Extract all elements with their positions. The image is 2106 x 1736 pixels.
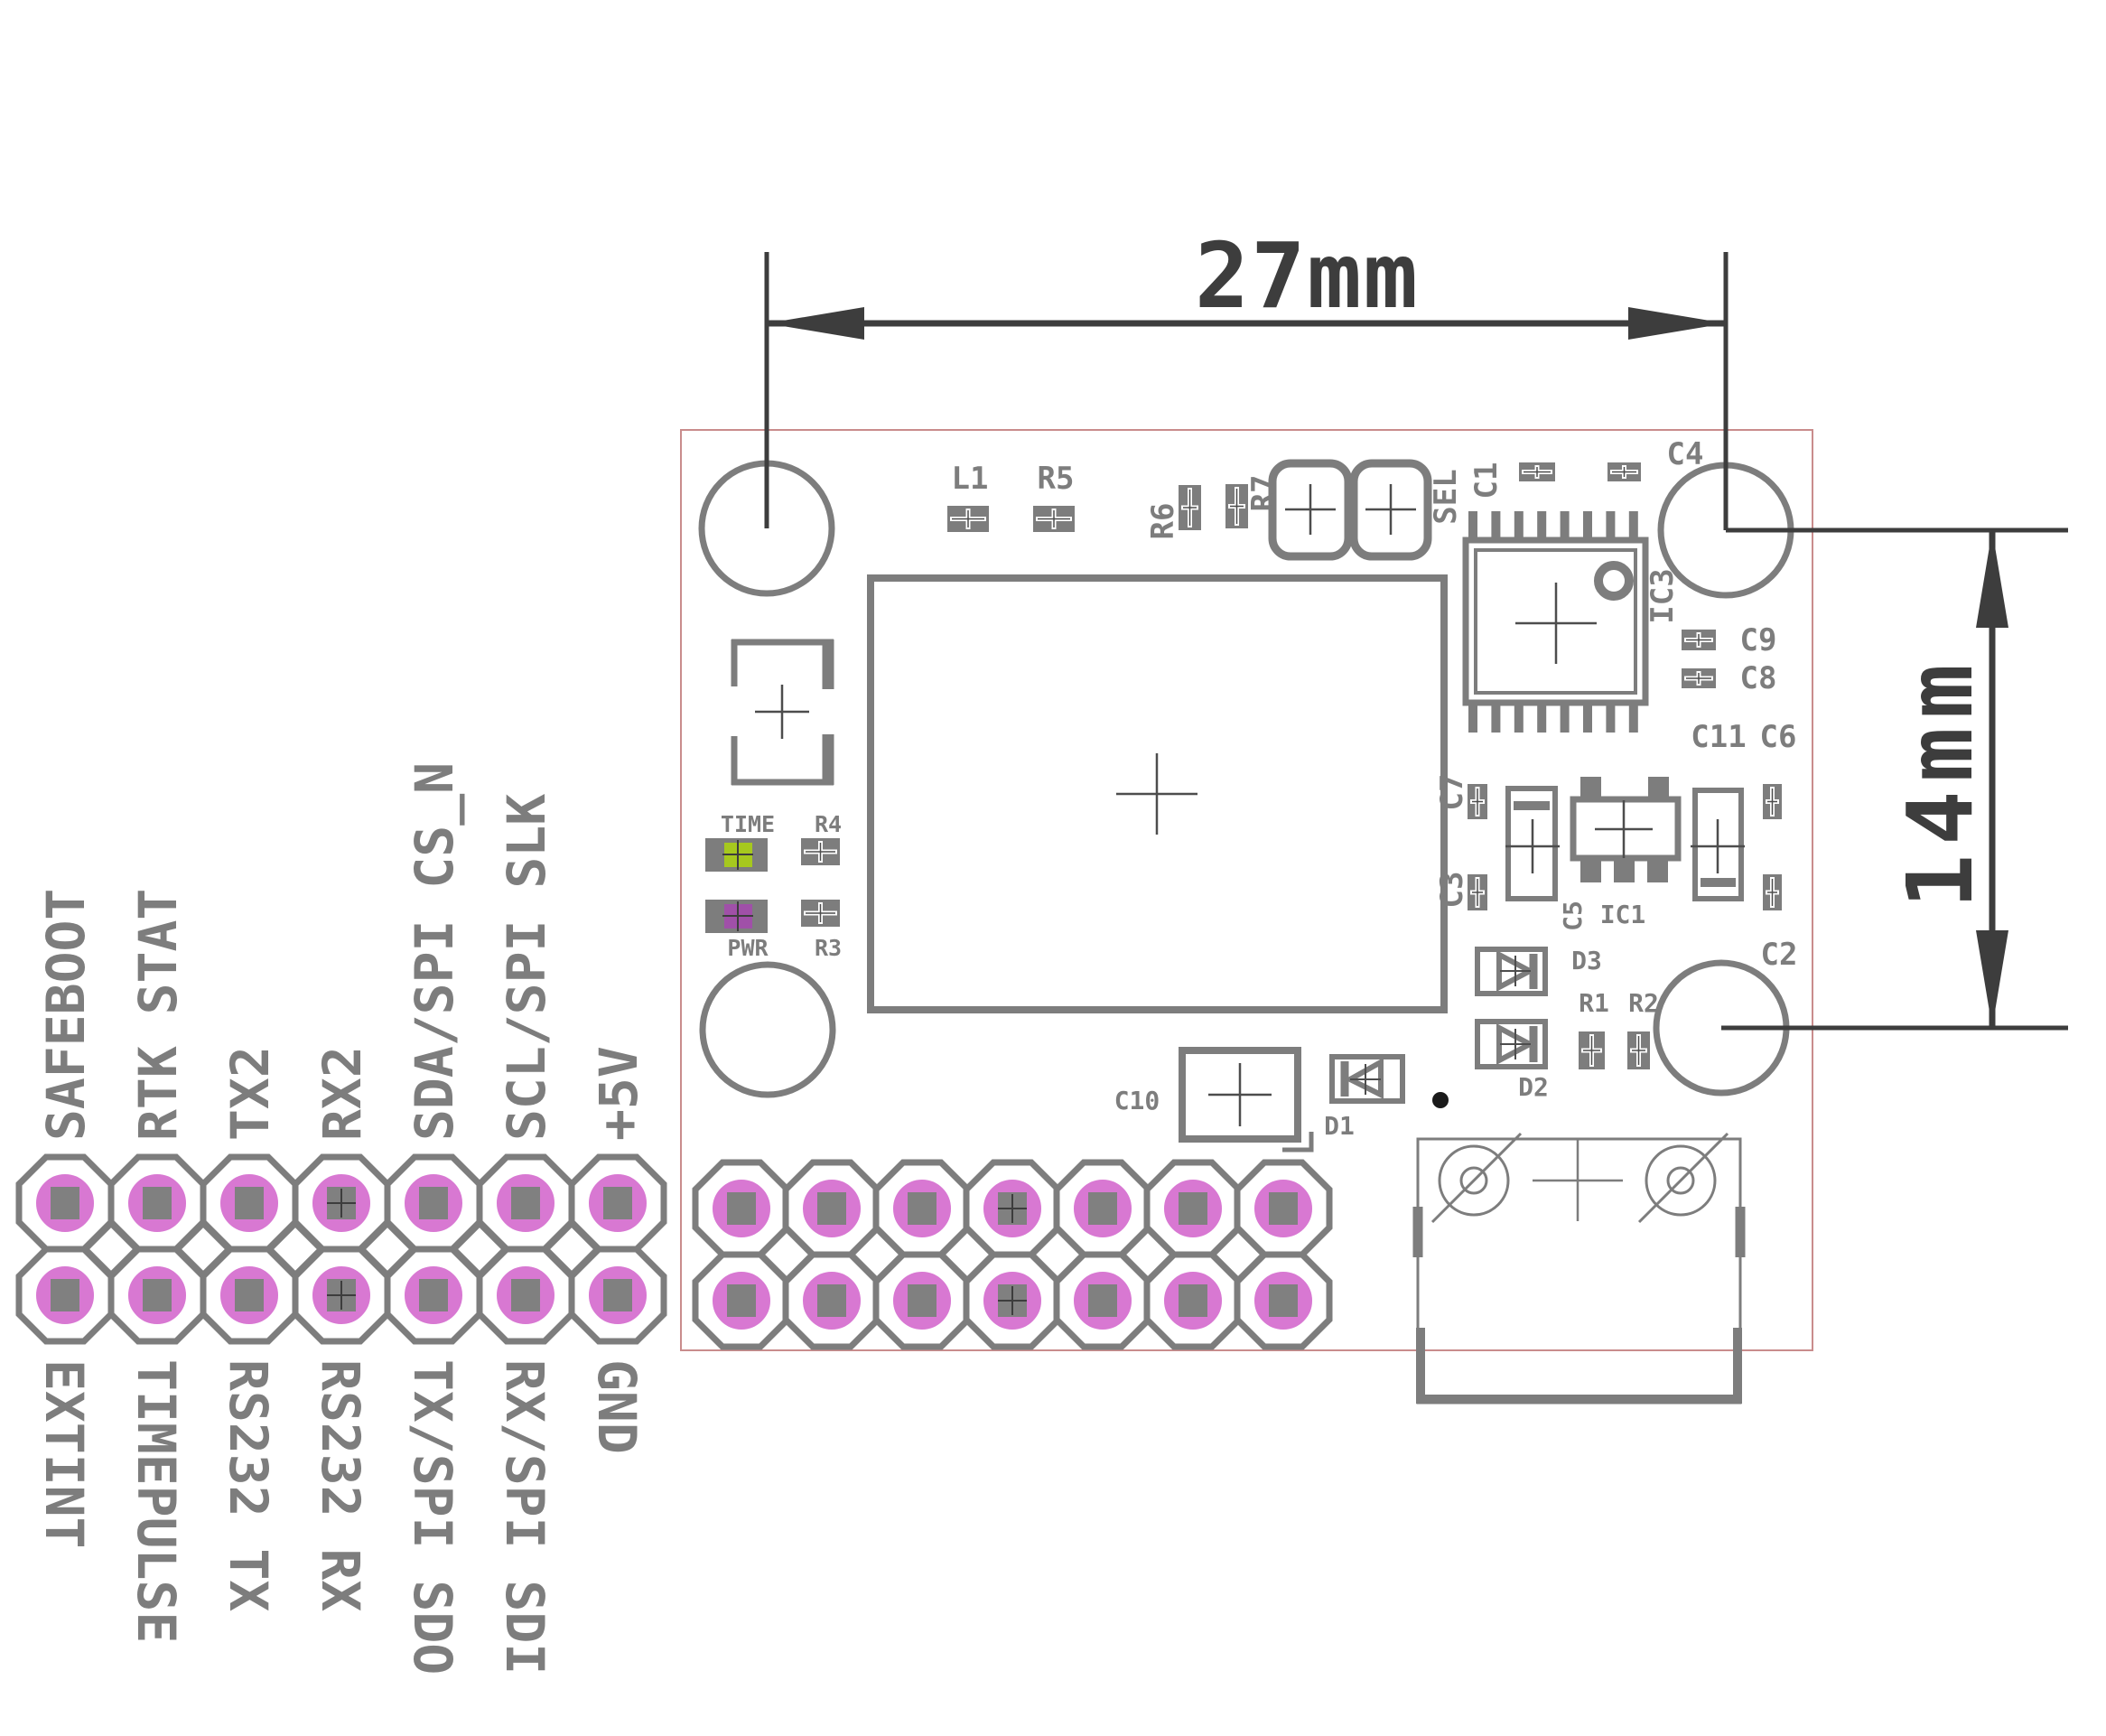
usb-connector	[1418, 1134, 1740, 1403]
usb-origin-cross	[1533, 1140, 1623, 1221]
pin-label-5v: +5V	[588, 1046, 649, 1141]
dimension-label-height: 14mm	[1887, 655, 1993, 909]
pad-hole	[1179, 1284, 1207, 1317]
label-l1: L1	[952, 461, 989, 497]
pad-hole	[419, 1187, 448, 1219]
cap-c6	[1691, 790, 1745, 899]
label-r3: R3	[815, 935, 842, 961]
diode-d1	[1332, 1057, 1402, 1101]
mounting-hole-bottom-left	[703, 965, 833, 1095]
pin-header-external	[19, 1157, 664, 1341]
label-c10: C10	[1114, 1086, 1160, 1115]
pin-label-rx2: RX2	[312, 1046, 373, 1141]
label-d1: D1	[1324, 1111, 1355, 1141]
pwr-led	[705, 900, 768, 933]
label-d2: D2	[1518, 1072, 1549, 1102]
label-c5: C5	[1558, 901, 1588, 931]
pin-label-gnd: GND	[586, 1359, 648, 1454]
label-c6: C6	[1760, 719, 1797, 755]
label-ic1: IC1	[1600, 900, 1646, 929]
label-r5: R5	[1038, 461, 1075, 497]
label-r7: R7	[1245, 475, 1281, 512]
chip-component	[1607, 462, 1641, 481]
pad-hole	[1088, 1192, 1117, 1225]
pcb-dimension-drawing: 27mm 14mm	[0, 0, 2106, 1736]
diode-d2	[1477, 1022, 1545, 1067]
label-time: TIME	[721, 811, 775, 837]
chip-component	[1468, 784, 1487, 819]
chip-component	[1519, 462, 1555, 481]
label-c1: C1	[1468, 462, 1505, 499]
label-c4: C4	[1667, 436, 1704, 472]
pad-hole	[419, 1279, 448, 1311]
chip-component	[1179, 485, 1201, 530]
pad-hole	[817, 1284, 846, 1317]
ic1-chip	[1573, 777, 1678, 882]
pad-hole	[1088, 1284, 1117, 1317]
pin-label-scl-spi-slk: SCL/SPI SLK	[496, 794, 557, 1141]
pad-hole	[143, 1187, 172, 1219]
pad-hole	[908, 1284, 937, 1317]
chip-component	[1579, 1031, 1605, 1069]
ic3-chip	[1466, 511, 1645, 733]
label-r2: R2	[1628, 988, 1659, 1018]
pin-label-extint: EXTINT	[33, 1359, 95, 1549]
pad-hole	[1179, 1192, 1207, 1225]
chip-component	[1682, 630, 1716, 650]
label-sel: SEL	[1428, 469, 1464, 524]
label-r1: R1	[1579, 988, 1609, 1018]
pad-hole	[143, 1279, 172, 1311]
pad-hole	[511, 1187, 540, 1219]
cap-c5	[1505, 789, 1560, 899]
pad-hole	[603, 1279, 632, 1311]
label-pwr: PWR	[727, 935, 769, 961]
pad-hole	[727, 1284, 756, 1317]
pin-label-sda-spi-csn: SDA/SPI CS_N	[404, 762, 465, 1141]
dimension-label-width: 27mm	[1195, 223, 1420, 329]
pad-hole	[817, 1192, 846, 1225]
arrowhead-right	[1628, 307, 1726, 340]
chip-component	[1682, 668, 1716, 688]
pad-hole	[511, 1279, 540, 1311]
cap-c10	[1182, 1050, 1311, 1150]
label-c9: C9	[1740, 622, 1777, 658]
pin-label-tx-spi-sdo: TX/SPI SDO	[402, 1359, 463, 1675]
label-c2: C2	[1761, 937, 1798, 973]
usb-screw-left	[1432, 1134, 1521, 1222]
label-c3: C3	[1434, 872, 1470, 909]
pin-label-rtk-stat: RTK STAT	[127, 889, 189, 1141]
usb-shell-bottom	[1421, 1328, 1738, 1399]
chip-component	[801, 838, 840, 865]
pin-label-rs232-tx: RS232 TX	[218, 1359, 279, 1611]
pad-hole	[603, 1187, 632, 1219]
chip-component	[801, 900, 840, 927]
arrowhead-left	[767, 307, 864, 340]
chip-component	[947, 506, 989, 532]
chip-component	[1468, 874, 1487, 910]
label-r6: R6	[1145, 503, 1181, 540]
pin-header-internal	[695, 1162, 1329, 1347]
chip-component	[1627, 1031, 1650, 1069]
label-c7: C7	[1434, 774, 1470, 811]
gnss-module-origin-cross	[1116, 753, 1197, 835]
pin-label-safeboot: SAFEBOOT	[35, 889, 97, 1141]
test-point-dot	[1432, 1092, 1449, 1108]
pin-label-timepulse: TIMEPULSE	[126, 1359, 187, 1643]
chip-component	[1763, 874, 1782, 910]
chip-component	[1763, 784, 1782, 819]
label-c8: C8	[1740, 660, 1777, 696]
pad-hole	[1269, 1192, 1298, 1225]
pad-hole	[235, 1279, 264, 1311]
pad-hole	[235, 1187, 264, 1219]
diode-d3	[1477, 949, 1545, 994]
pin-label-rs232-rx: RS232 RX	[310, 1359, 371, 1611]
pin-label-tx2: TX2	[219, 1046, 281, 1141]
arrowhead-down	[1976, 930, 2008, 1028]
arrowhead-up	[1976, 530, 2008, 628]
pad-hole	[51, 1279, 79, 1311]
label-ic3: IC3	[1645, 568, 1681, 623]
pin-label-rx-spi-sdi: RX/SPI SDI	[494, 1359, 555, 1675]
usb-screw-right	[1639, 1134, 1728, 1222]
pad-hole	[908, 1192, 937, 1225]
label-d3: D3	[1571, 946, 1602, 975]
chip-component	[1033, 506, 1075, 532]
pad-hole	[51, 1187, 79, 1219]
pad-hole	[1269, 1284, 1298, 1317]
time-led	[705, 838, 768, 872]
label-r4: R4	[815, 811, 842, 837]
label-c11: C11	[1691, 719, 1746, 755]
fiducial-cross	[755, 685, 809, 739]
pad-hole	[727, 1192, 756, 1225]
